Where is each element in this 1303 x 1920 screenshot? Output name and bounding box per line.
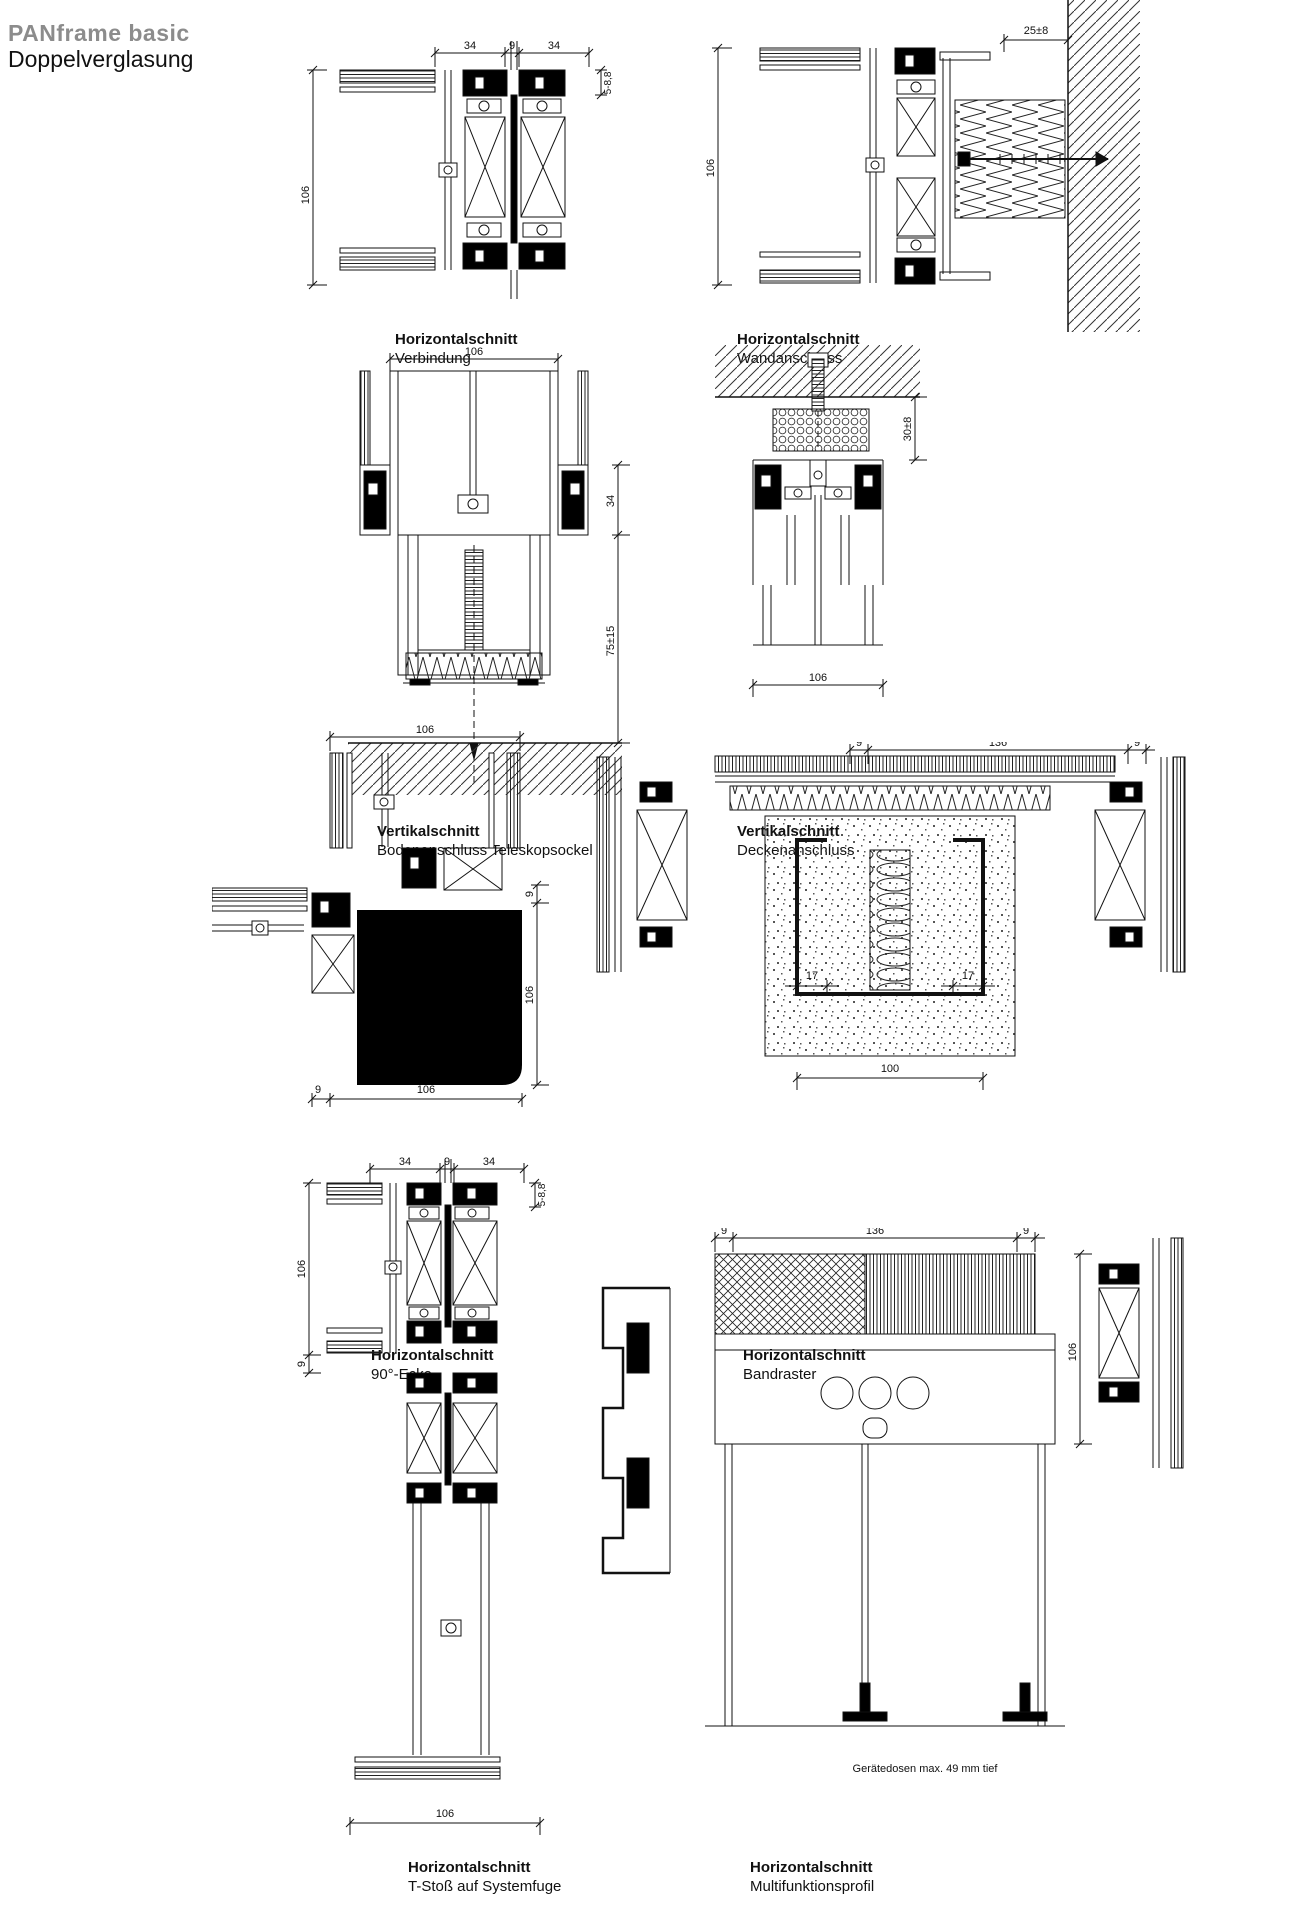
profile-geometry (212, 753, 522, 1085)
drawing-multifunktionsprofil-graphic: 9 136 9 (575, 1228, 1189, 1790)
caption-multifunktionsprofil: Horizontalschnitt Multifunktionsprofil (750, 1858, 874, 1896)
drawing-multifunktionsprofil: 9 136 9 (575, 1228, 1189, 1790)
dim-right: 30±8 (902, 417, 914, 441)
caption-multifunktionsprofil-title: Horizontalschnitt (750, 1858, 874, 1877)
dim-top-right: 9 (1134, 742, 1140, 749)
page-title-subtitle: Doppelverglasung (8, 46, 193, 73)
caption-tstoss: Horizontalschnitt T-Stoß auf Systemfuge (408, 1858, 561, 1896)
wall-hatch (1068, 0, 1140, 332)
profile-geometry (597, 756, 1185, 1056)
dim-right: 5-8,8 (603, 71, 614, 94)
profile-geometry (340, 41, 565, 299)
dim-left-lower: 9 (296, 1361, 308, 1367)
profile-geometry (760, 48, 1108, 284)
dim-top-mid: 136 (989, 742, 1007, 749)
drawing-sheet: PANframe basic Doppelverglasung 34 9 34 … (0, 0, 1303, 1920)
right-panel-geometry (1099, 1238, 1183, 1468)
dim-mid-left: 17 (806, 970, 818, 982)
profile-geometry (327, 1159, 500, 1779)
drawing-bandraster: 9 136 9 (595, 742, 1189, 1102)
dim-bottom-right: 106 (417, 1084, 435, 1096)
dim-line-left (307, 66, 327, 289)
dim-right-upper: 34 (605, 495, 617, 507)
drawing-deckenanschluss-graphic: 30±8 106 (715, 345, 939, 719)
drawing-ecke: 106 (212, 725, 559, 1107)
dim-top-right: 34 (548, 40, 560, 52)
dim-top-right: 34 (483, 1156, 495, 1168)
dim-top: 106 (416, 725, 434, 736)
dim-right-lower: 75±15 (605, 626, 617, 657)
dim-right-lower: 106 (524, 986, 536, 1004)
drawing-bandraster-graphic: 9 136 9 (595, 742, 1189, 1102)
dim-mid-right: 17 (962, 970, 974, 982)
dim-top-left: 9 (721, 1228, 727, 1237)
dim-bottom: 106 (436, 1808, 454, 1820)
caption-tstoss-title: Horizontalschnitt (408, 1858, 561, 1877)
dim-top: 106 (465, 346, 483, 358)
dim-bottom: 106 (809, 672, 827, 684)
drawing-ecke-graphic: 106 (212, 725, 559, 1107)
drawing-tstoss-graphic: 34 9 34 106 9 (295, 1155, 562, 1857)
dim-bottom-left: 9 (315, 1084, 321, 1096)
drawing-wandanschluss: 25±8 106 (700, 0, 1142, 332)
dim-right-upper: 9 (524, 891, 536, 897)
caption-tstoss-subtitle: T-Stoß auf Systemfuge (408, 1877, 561, 1896)
dim-left: 106 (705, 159, 717, 177)
dim-top-mid: 136 (866, 1228, 884, 1237)
drawing-verbindung-graphic: 34 9 34 106 (295, 35, 617, 327)
dim-left: 106 (296, 1260, 308, 1278)
dim-right: 5-8,8 (537, 1183, 548, 1206)
drawing-verbindung: 34 9 34 106 (295, 35, 617, 327)
dim-top-right: 9 (1023, 1228, 1029, 1237)
profile-geometry (603, 1254, 1065, 1726)
drawing-deckenanschluss: 30±8 106 (715, 345, 939, 719)
caption-multifunktionsprofil-subtitle: Multifunktionsprofil (750, 1877, 874, 1896)
dim-bottom: 100 (881, 1063, 899, 1075)
dim-line-right (531, 881, 549, 1089)
drawing-wandanschluss-graphic: 25±8 106 (700, 0, 1142, 332)
dim-top-left: 34 (399, 1156, 411, 1168)
dim-left: 106 (300, 186, 312, 204)
page-title-brand: PANframe basic (8, 20, 190, 47)
dim-top-left: 9 (856, 742, 862, 749)
dim-right: 106 (1067, 1343, 1079, 1361)
drawing-tstoss: 34 9 34 106 9 (295, 1155, 562, 1857)
dim-top-mid: 9 (509, 40, 515, 52)
dim-top: 25±8 (1024, 25, 1048, 37)
dim-top-left: 34 (464, 40, 476, 52)
note-geraetedosen: Gerätedosen max. 49 mm tief (805, 1763, 1045, 1775)
